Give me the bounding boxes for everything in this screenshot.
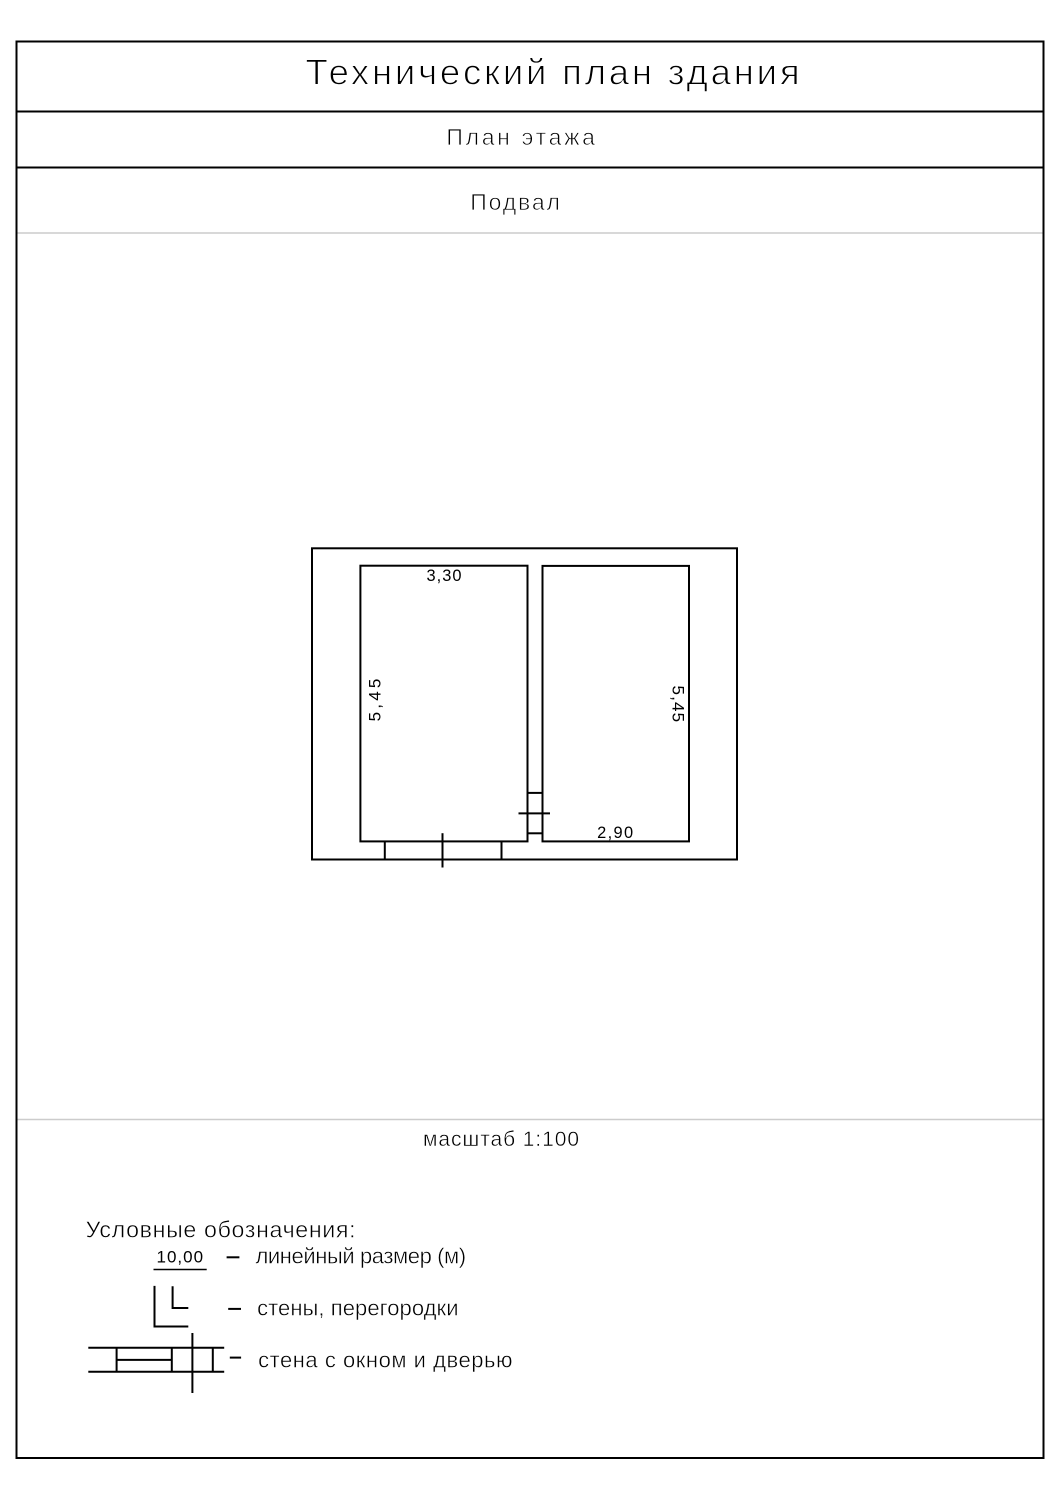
svg-text:5,45: 5,45 xyxy=(668,686,687,724)
svg-text:10,00: 10,00 xyxy=(157,1248,205,1267)
svg-text:Технический план здания: Технический план здания xyxy=(306,51,803,92)
svg-text:2,90: 2,90 xyxy=(597,824,634,842)
svg-text:Подвал: Подвал xyxy=(470,189,561,215)
svg-text:3,30: 3,30 xyxy=(427,567,463,585)
svg-text:линейный размер (м): линейный размер (м) xyxy=(256,1244,466,1269)
svg-text:стены, перегородки: стены, перегородки xyxy=(257,1295,458,1320)
svg-text:5,45: 5,45 xyxy=(366,675,385,721)
svg-text:Условные обозначения:: Условные обозначения: xyxy=(86,1217,357,1243)
svg-text:План этажа: План этажа xyxy=(446,124,597,150)
svg-text:стена с окном и дверью: стена с окном и дверью xyxy=(258,1348,513,1373)
svg-text:масштаб 1:100: масштаб 1:100 xyxy=(423,1128,580,1151)
